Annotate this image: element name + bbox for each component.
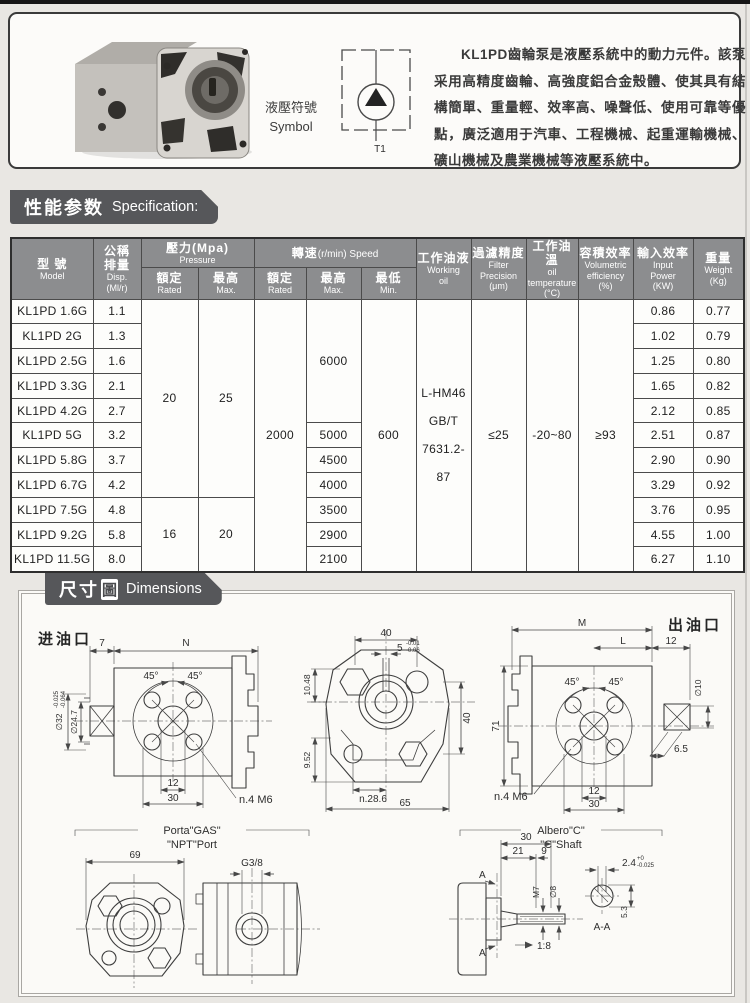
cell-disp: 5.8 — [93, 522, 141, 547]
svg-text:M7: M7 — [531, 886, 541, 898]
col-pressure-rated: 額定 Rated — [141, 268, 198, 299]
svg-text:12: 12 — [665, 636, 677, 647]
svg-text:n.28.6: n.28.6 — [359, 794, 387, 805]
svg-text:M: M — [578, 618, 586, 629]
shaft-drawing: Albero"C" "C"Shaft 30 21 9 M7 ∅8 A A 1:8… — [425, 818, 735, 998]
cell-weight: 0.85 — [693, 398, 744, 423]
svg-text:10.48: 10.48 — [302, 674, 312, 696]
cell-model: KL1PD 6.7G — [11, 473, 93, 498]
cell-power: 6.27 — [633, 547, 693, 572]
cell-speed-min: 600 — [361, 299, 416, 572]
front-view-drawing: 40 5 -0.01 -0.06 10.48 9.52 40 n.28.6 65 — [293, 612, 488, 817]
svg-text:30: 30 — [588, 799, 600, 810]
spec-banner-en: Specification: — [112, 199, 198, 215]
svg-text:n.4 M6: n.4 M6 — [494, 791, 528, 803]
svg-text:+0: +0 — [637, 856, 645, 862]
col-working-oil: 工作油液 Working oil — [416, 238, 471, 299]
cell-filter: ≤25 — [471, 299, 526, 572]
cell-disp: 1.3 — [93, 324, 141, 349]
cell-model: KL1PD 1.6G — [11, 299, 93, 324]
col-pressure-max: 最高 Max. — [198, 268, 254, 299]
cell-model: KL1PD 3.3G — [11, 373, 93, 398]
cell-model: KL1PD 2.5G — [11, 349, 93, 374]
svg-text:A: A — [479, 870, 486, 881]
intro-box: 液壓符號 Symbol T1 KL1PD齒輪泵是液壓系統中的動力元件。該泵采用高… — [8, 12, 741, 169]
cell-model: KL1PD 5.8G — [11, 448, 93, 473]
cell-model: KL1PD 2G — [11, 324, 93, 349]
cell-working-oil: L-HM46 GB/T 7631.2-87 — [416, 299, 471, 572]
svg-text:-0.064: -0.064 — [61, 690, 67, 708]
spec-section-banner: 性能参数 Specification: — [10, 190, 218, 224]
pump-photo — [57, 22, 262, 162]
cell-speed-max: 5000 — [306, 423, 361, 448]
col-model: 型 號 Model — [11, 238, 93, 299]
svg-text:-0.01: -0.01 — [406, 641, 420, 647]
cell-disp: 3.2 — [93, 423, 141, 448]
col-speed-min: 最低 Min. — [361, 268, 416, 299]
svg-text:5: 5 — [397, 643, 403, 654]
svg-text:45°: 45° — [564, 677, 579, 688]
cell-weight: 0.95 — [693, 497, 744, 522]
page-top-edge — [0, 0, 750, 4]
cell-power: 1.02 — [633, 324, 693, 349]
svg-text:1:8: 1:8 — [537, 941, 551, 952]
cell-weight: 0.79 — [693, 324, 744, 349]
col-volumetric-efficiency: 容積效率 Volumetric efficiency (%) — [578, 238, 633, 299]
spec-table-header: 型 號 Model 公稱 排量 Disp. (Ml/r) 壓力(Mpa) Pre… — [11, 238, 744, 299]
svg-text:∅24.7: ∅24.7 — [69, 710, 79, 734]
svg-text:5.3: 5.3 — [619, 906, 629, 918]
svg-text:2.4: 2.4 — [622, 858, 636, 869]
svg-text:∅10: ∅10 — [693, 679, 703, 696]
svg-text:"NPT"Port: "NPT"Port — [167, 839, 217, 851]
dim-banner-zh: 尺寸 — [59, 576, 99, 602]
svg-text:Porta"GAS": Porta"GAS" — [163, 825, 220, 837]
cell-weight: 0.87 — [693, 423, 744, 448]
svg-text:40: 40 — [380, 628, 392, 639]
svg-text:∅8: ∅8 — [548, 886, 558, 898]
cell-model: KL1PD 5G — [11, 423, 93, 448]
cell-power: 1.25 — [633, 349, 693, 374]
cell-disp: 1.1 — [93, 299, 141, 324]
svg-text:6.5: 6.5 — [674, 744, 688, 755]
dimensions-section-banner: 尺寸 圖 Dimensions — [45, 573, 222, 605]
cell-disp: 8.0 — [93, 547, 141, 572]
svg-text:9.52: 9.52 — [302, 751, 312, 768]
cell-power: 1.65 — [633, 373, 693, 398]
svg-text:69: 69 — [129, 850, 141, 861]
svg-text:12: 12 — [588, 786, 600, 797]
svg-text:40: 40 — [462, 712, 473, 724]
svg-text:30: 30 — [167, 793, 179, 804]
svg-text:A-A: A-A — [594, 922, 611, 933]
cell-weight: 0.80 — [693, 349, 744, 374]
hydraulic-symbol: T1 — [332, 42, 422, 154]
cell-oil-temp: -20~80 — [526, 299, 578, 572]
svg-text:45°: 45° — [143, 671, 158, 682]
svg-text:n.4 M6: n.4 M6 — [239, 794, 273, 806]
catalog-page: { "intro": { "symbol_label_zh": "液壓符號", … — [0, 0, 750, 1003]
cell-power: 3.29 — [633, 473, 693, 498]
svg-text:Albero"C": Albero"C" — [537, 825, 585, 837]
cell-speed-max: 3500 — [306, 497, 361, 522]
cell-weight: 0.92 — [693, 473, 744, 498]
table-row: KL1PD 1.6G 1.1 20 25 2000 6000 600 L-HM4… — [11, 299, 744, 324]
cell-speed-max: 4000 — [306, 473, 361, 498]
cell-speed-max: 2900 — [306, 522, 361, 547]
cell-power: 2.12 — [633, 398, 693, 423]
symbol-caption-zh: 液壓符號 — [248, 98, 334, 117]
svg-text:-0.025: -0.025 — [54, 690, 60, 708]
svg-text:∅32: ∅32 — [54, 713, 64, 730]
cell-disp: 2.1 — [93, 373, 141, 398]
col-group-pressure: 壓力(Mpa) Pressure — [141, 238, 254, 268]
dim-banner-boxchar: 圖 — [101, 579, 118, 600]
spec-table: 型 號 Model 公稱 排量 Disp. (Ml/r) 壓力(Mpa) Pre… — [10, 237, 745, 573]
svg-text:71: 71 — [491, 720, 502, 732]
cell-model: KL1PD 4.2G — [11, 398, 93, 423]
svg-text:21: 21 — [512, 846, 524, 857]
spec-banner-zh: 性能参数 — [24, 194, 104, 220]
cell-pressure-rated-a: 20 — [141, 299, 198, 497]
svg-text:7: 7 — [99, 638, 105, 649]
cell-power: 2.51 — [633, 423, 693, 448]
cell-speed-max-a: 6000 — [306, 299, 361, 423]
cell-model: KL1PD 9.2G — [11, 522, 93, 547]
cell-power: 3.76 — [633, 497, 693, 522]
cell-disp: 2.7 — [93, 398, 141, 423]
cell-power: 0.86 — [633, 299, 693, 324]
cell-pressure-max-a: 25 — [198, 299, 254, 497]
cell-vol-eff: ≥93 — [578, 299, 633, 572]
cell-pressure-rated-b: 16 — [141, 497, 198, 571]
inlet-drawing: 45° 45° 7 N ∅32 -0.025 -0.064 ∅24.7 12 3… — [28, 610, 300, 815]
col-oil-temperature: 工作油溫 oil temperature (°C) — [526, 238, 578, 299]
cell-weight: 0.82 — [693, 373, 744, 398]
symbol-caption-en: Symbol — [248, 117, 334, 136]
col-filter-precision: 過濾精度 Filter Precision (μm) — [471, 238, 526, 299]
dim-banner-en: Dimensions — [126, 581, 202, 597]
cell-power: 4.55 — [633, 522, 693, 547]
cell-speed-max: 2100 — [306, 547, 361, 572]
svg-text:-0.06: -0.06 — [406, 648, 420, 654]
col-group-speed: 轉速(r/min) Speed — [254, 238, 416, 268]
cell-weight: 0.77 — [693, 299, 744, 324]
col-speed-max: 最高 Max. — [306, 268, 361, 299]
svg-text:G3/8: G3/8 — [241, 858, 263, 869]
cell-pressure-max-b: 20 — [198, 497, 254, 571]
svg-text:45°: 45° — [187, 671, 202, 682]
col-speed-rated: 額定 Rated — [254, 268, 306, 299]
svg-text:9: 9 — [541, 846, 547, 857]
cell-speed-rated: 2000 — [254, 299, 306, 572]
ports-drawing: Porta"GAS" "NPT"Port 69 G3/8 — [62, 818, 362, 996]
cell-weight: 0.90 — [693, 448, 744, 473]
col-displacement: 公稱 排量 Disp. (Ml/r) — [93, 238, 141, 299]
svg-text:65: 65 — [399, 798, 411, 809]
cell-disp: 3.7 — [93, 448, 141, 473]
symbol-caption: 液壓符號 Symbol — [248, 98, 334, 136]
cell-model: KL1PD 7.5G — [11, 497, 93, 522]
cell-weight: 1.00 — [693, 522, 744, 547]
cell-disp: 4.2 — [93, 473, 141, 498]
svg-text:45°: 45° — [608, 677, 623, 688]
cell-disp: 4.8 — [93, 497, 141, 522]
svg-text:12: 12 — [167, 778, 179, 789]
svg-text:30: 30 — [520, 832, 532, 843]
svg-text:A: A — [479, 948, 486, 959]
svg-text:-0.025: -0.025 — [637, 863, 655, 869]
outlet-drawing: 45° 45° M L 12 71 ∅10 6.5 12 30 n.4 M6 — [482, 604, 732, 816]
cell-weight: 1.10 — [693, 547, 744, 572]
svg-text:L: L — [620, 636, 626, 647]
cell-power: 2.90 — [633, 448, 693, 473]
symbol-port-label: T1 — [374, 144, 386, 154]
cell-model: KL1PD 11.5G — [11, 547, 93, 572]
col-weight: 重量 Weight (Kg) — [693, 238, 744, 299]
cell-speed-max: 4500 — [306, 448, 361, 473]
svg-text:N: N — [182, 638, 189, 649]
product-description: KL1PD齒輪泵是液壓系統中的動力元件。該泵采用高精度齒輪、高強度鋁合金殼體、使… — [434, 42, 746, 175]
col-input-power: 輸入效率 Input Power (KW) — [633, 238, 693, 299]
cell-disp: 1.6 — [93, 349, 141, 374]
